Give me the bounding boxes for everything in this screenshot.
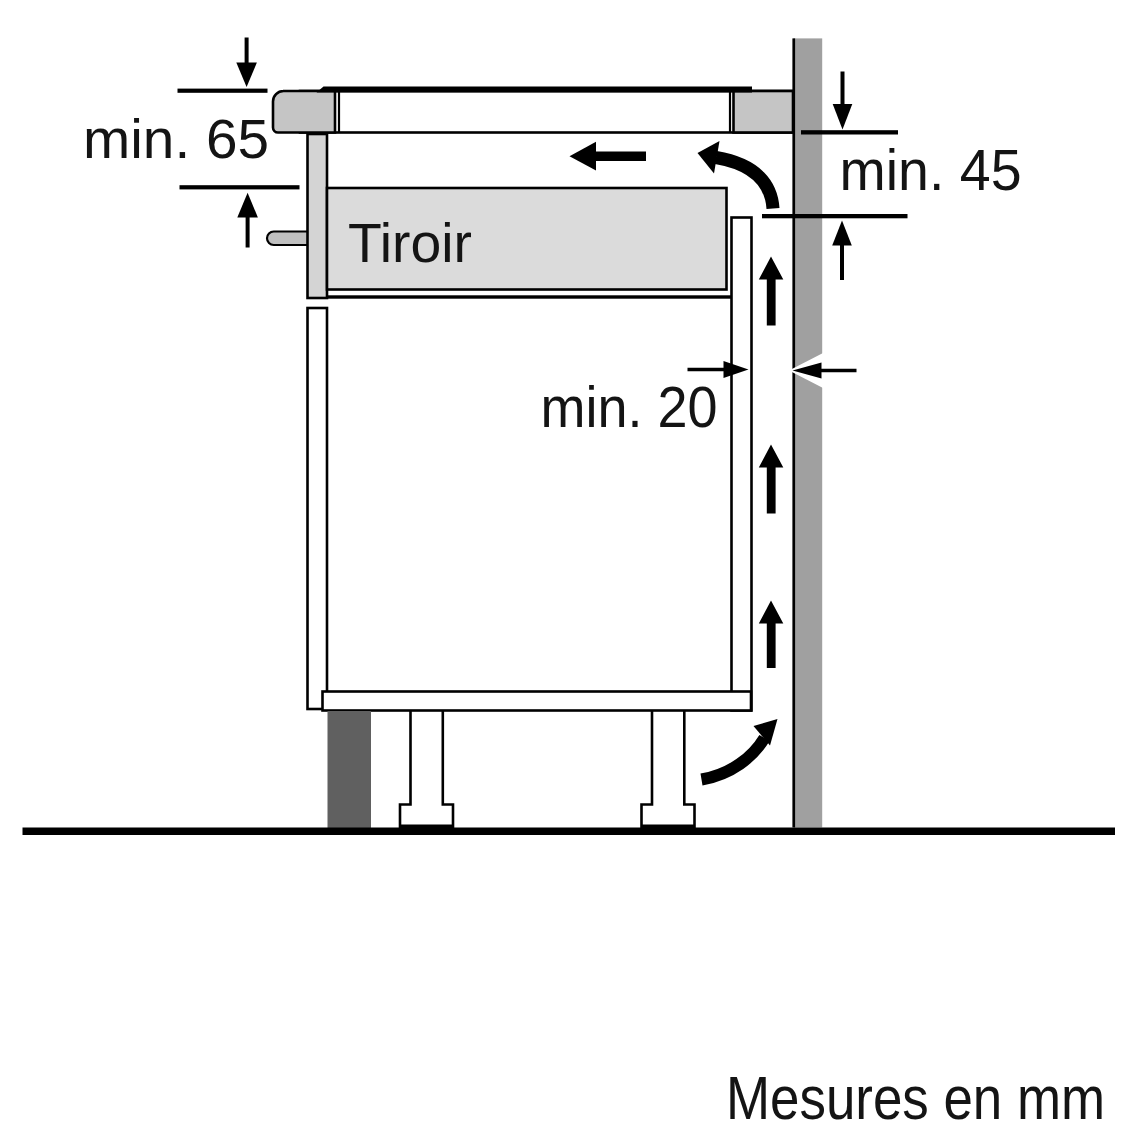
svg-text:min. 45: min. 45 — [840, 138, 1022, 202]
svg-text:min. 65: min. 65 — [83, 107, 269, 170]
svg-text:Mesures en mm: Mesures en mm — [726, 1064, 1105, 1132]
svg-text:min. 20: min. 20 — [541, 375, 718, 439]
svg-text:Tiroir: Tiroir — [348, 212, 472, 274]
